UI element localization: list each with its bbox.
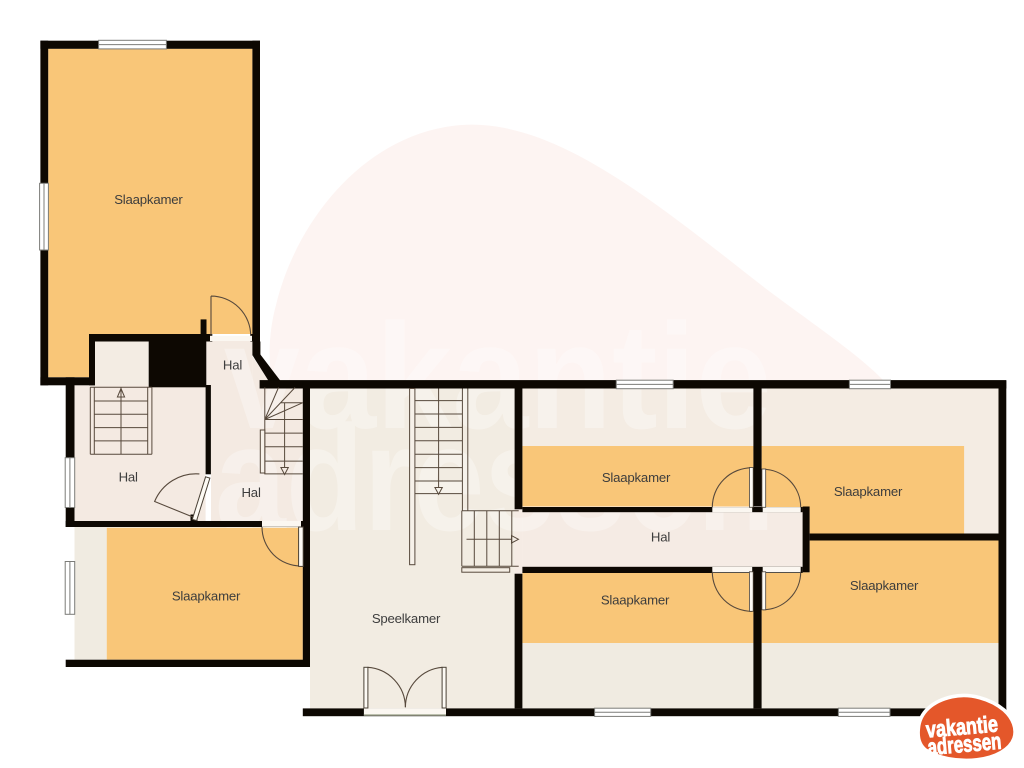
svg-text:Slaapkamer: Slaapkamer [114, 192, 183, 207]
svg-text:Slaapkamer: Slaapkamer [602, 470, 671, 485]
svg-text:Slaapkamer: Slaapkamer [601, 593, 670, 608]
svg-text:Hal: Hal [223, 357, 242, 372]
svg-text:Speelkamer: Speelkamer [372, 611, 441, 626]
svg-text:Slaapkamer: Slaapkamer [172, 589, 241, 604]
svg-text:Hal: Hal [119, 470, 138, 485]
svg-text:Slaapkamer: Slaapkamer [850, 578, 919, 593]
svg-text:Hal: Hal [241, 485, 260, 500]
svg-text:Slaapkamer: Slaapkamer [834, 484, 903, 499]
svg-text:Hal: Hal [651, 530, 670, 545]
